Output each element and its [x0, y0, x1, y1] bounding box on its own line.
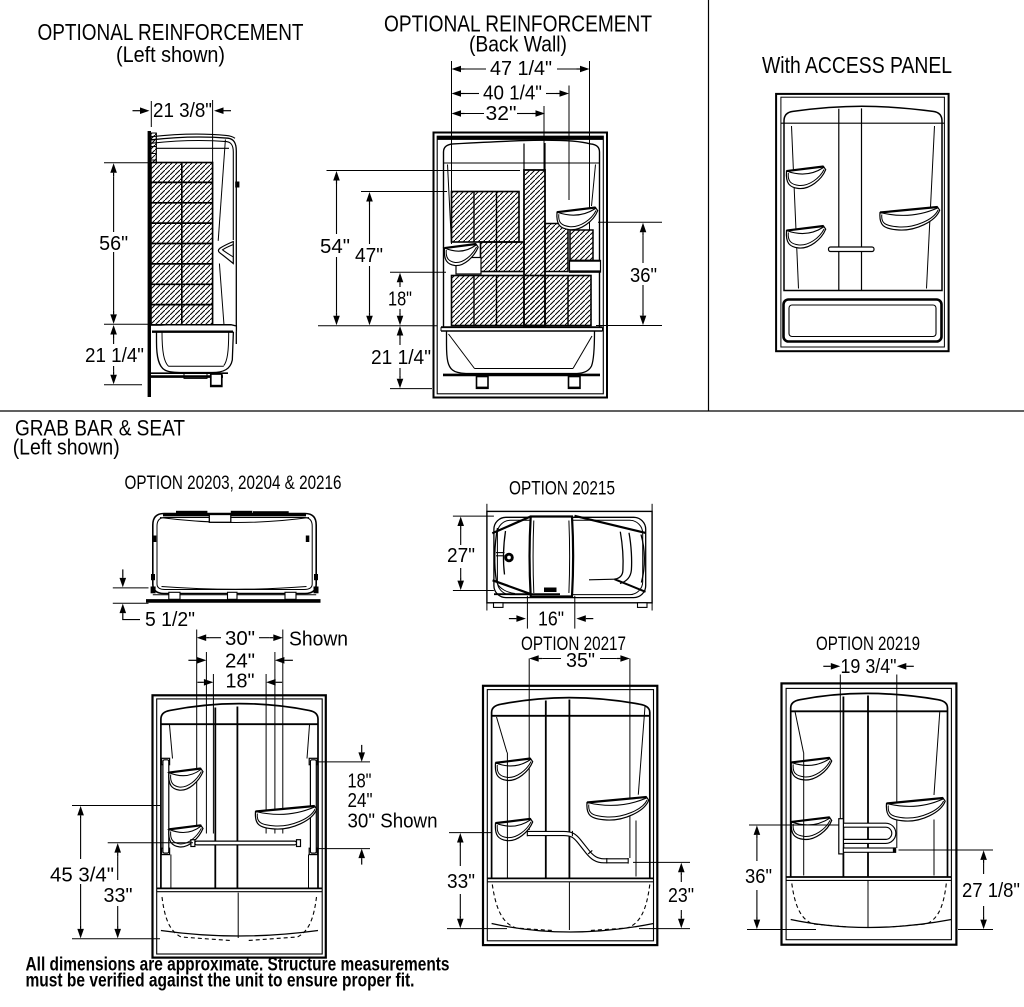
- svg-text:40 1/4": 40 1/4": [483, 82, 542, 104]
- svg-text:OPTION 20219: OPTION 20219: [816, 634, 920, 655]
- svg-text:47 1/4": 47 1/4": [490, 58, 552, 80]
- svg-text:30": 30": [225, 628, 255, 650]
- svg-text:Shown: Shown: [289, 629, 348, 651]
- svg-text:18": 18": [226, 671, 255, 693]
- svg-text:must be verified against the u: must be verified against the unit to ens…: [26, 971, 415, 992]
- svg-text:With ACCESS PANEL: With ACCESS PANEL: [762, 52, 952, 78]
- svg-text:30" Shown: 30" Shown: [348, 811, 438, 833]
- svg-text:21 1/4": 21 1/4": [371, 347, 431, 369]
- svg-text:47": 47": [355, 245, 383, 267]
- svg-text:45 3/4": 45 3/4": [50, 865, 114, 887]
- svg-text:(Back Wall): (Back Wall): [469, 32, 567, 57]
- svg-text:33": 33": [447, 871, 475, 893]
- svg-text:16": 16": [538, 609, 564, 631]
- svg-text:23": 23": [668, 885, 694, 907]
- svg-text:36": 36": [745, 866, 772, 888]
- svg-text:21 1/4": 21 1/4": [85, 345, 144, 367]
- svg-text:18": 18": [388, 289, 412, 311]
- svg-text:27 1/8": 27 1/8": [962, 880, 1020, 902]
- svg-text:27": 27": [447, 545, 475, 567]
- svg-text:19 3/4": 19 3/4": [841, 656, 897, 678]
- svg-text:24": 24": [348, 790, 373, 812]
- svg-text:5 1/2": 5 1/2": [145, 609, 195, 631]
- svg-text:OPTION 20215: OPTION 20215: [509, 479, 615, 500]
- svg-text:(Left shown): (Left shown): [116, 42, 225, 67]
- svg-text:36": 36": [630, 265, 657, 287]
- svg-text:33": 33": [104, 885, 133, 907]
- svg-text:24": 24": [225, 651, 255, 673]
- svg-text:OPTION 20203, 20204 & 20216: OPTION 20203, 20204 & 20216: [125, 473, 342, 494]
- svg-text:56": 56": [99, 233, 128, 255]
- svg-text:32": 32": [486, 103, 517, 125]
- svg-text:(Left shown): (Left shown): [13, 434, 120, 459]
- svg-text:21 3/8": 21 3/8": [153, 100, 212, 122]
- svg-text:54": 54": [320, 236, 350, 258]
- svg-text:35": 35": [566, 650, 595, 672]
